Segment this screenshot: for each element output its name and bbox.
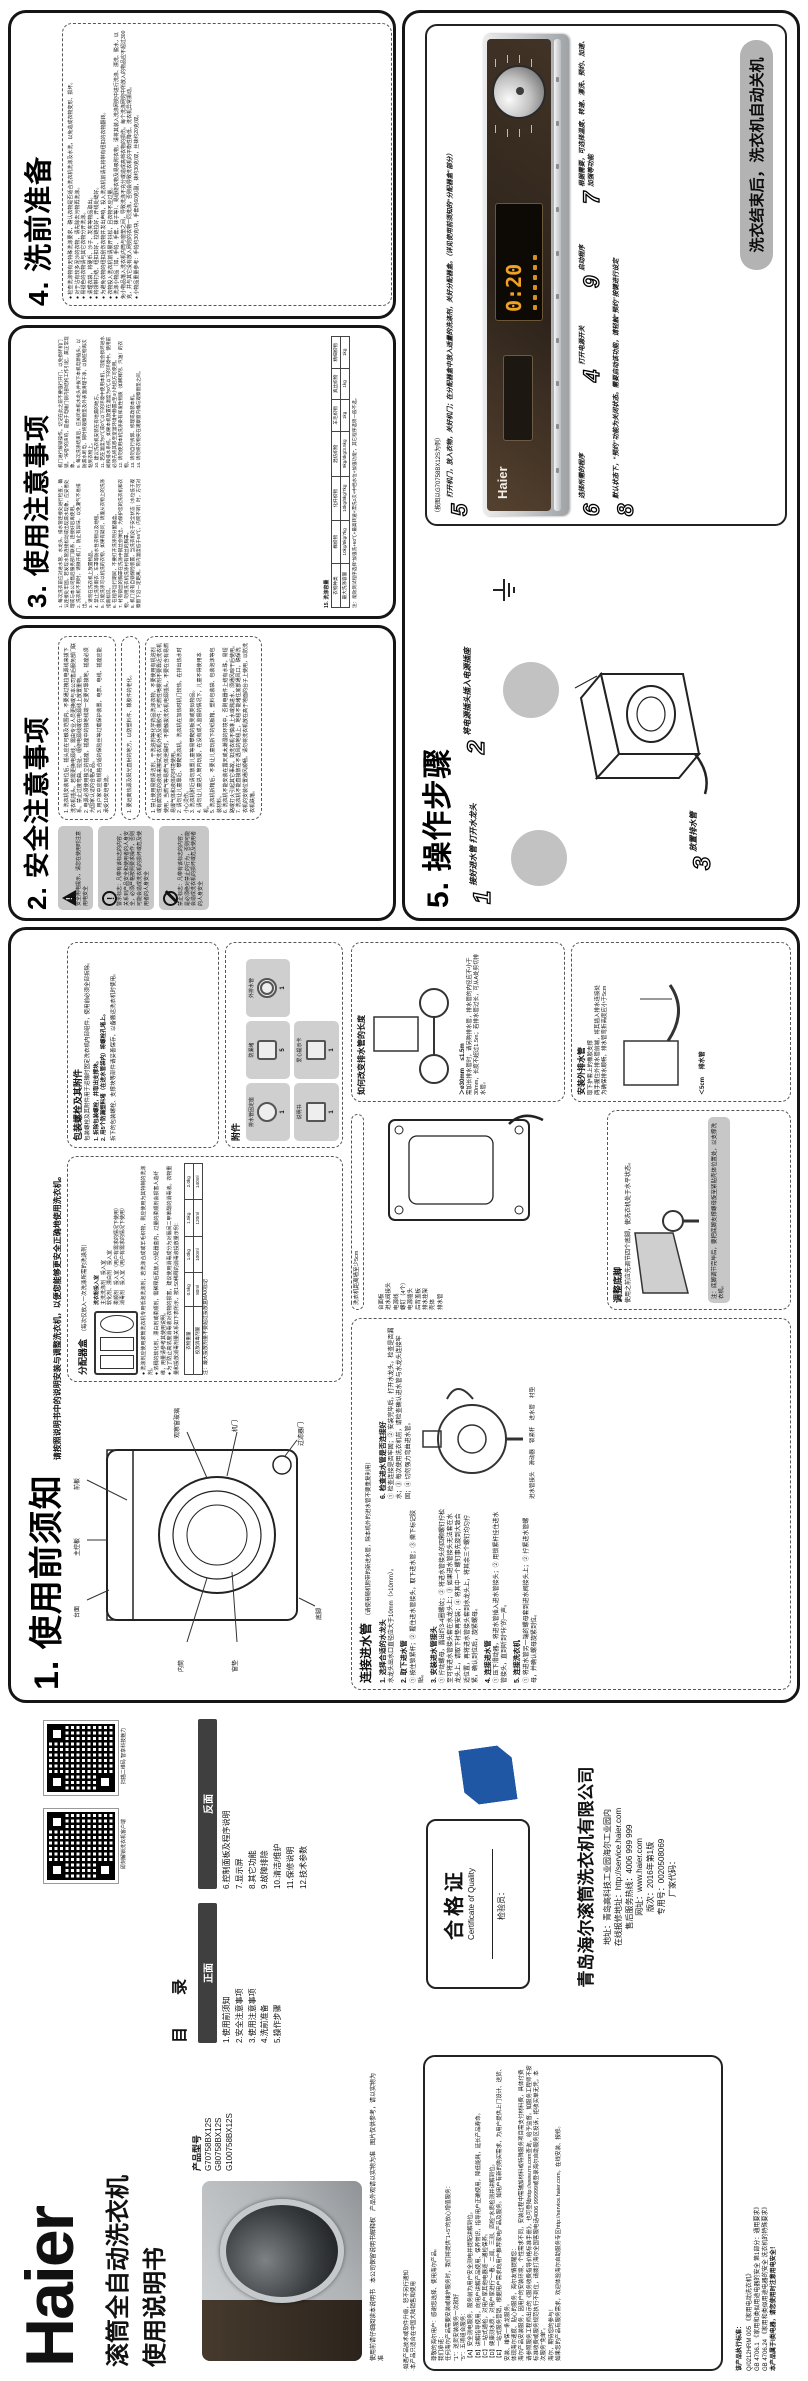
capacity-table-row: 最大洗涤容量10kg/8kg/7kg10kg/8kg/7kg9kg/4kg/3.… — [340, 337, 349, 608]
accessories-title: 附件 — [231, 949, 243, 1141]
step-text: 选择所需的程序 — [579, 453, 605, 499]
adjust-feet-text: 使用之前应先调节四个底脚，使洗衣机处于水平状态。 — [625, 1117, 633, 1303]
drain-maxlen-label: ≤1.5m — [460, 1043, 466, 1060]
control-panel-box: （按图以G70758BX12S为例） 5 打开机门，放入衣物，关好机门；在分配器… — [425, 24, 787, 526]
certificate-box: 合格证 Certificate of Quality 检验员： — [426, 1819, 530, 1989]
toc-item: 1.使用前须知 — [222, 1903, 233, 2043]
section-xiqian-heading: 4. 洗前准备 — [17, 23, 57, 306]
outer-drain-items: 取下护套上的橡胶支撑两手握住外排水管前端，将其插入排水连接处为确保排水顺畅，排水… — [588, 949, 610, 1095]
plug-callout — [503, 662, 559, 718]
accessory-tile: 排水管固定座 1 — [246, 1083, 291, 1141]
connect-part-label: 进水管 — [530, 1404, 536, 1421]
connect-step-title: 2. 取下进水管 — [400, 1509, 409, 1683]
dispenser-title: 分配器盒 — [78, 1339, 88, 1375]
table-cell: 10kg/8kg/7kg — [340, 520, 349, 564]
accessory-tile: 外排水管 1 — [246, 959, 291, 1017]
connect-intro: （请使用随机附带的新进水管，除本机外的进水管不要重复利用） — [366, 1459, 372, 1619]
connect-step-text: ① 压下滑动器，将进水管插入进水管接头；② 用锁紧杆挂住进水管接头，直到听到“咔… — [493, 1509, 509, 1683]
dispenser-compartment: 消毒剂 投入室（用户有需求的情况下使用） — [120, 1205, 127, 1305]
adjust-feet-title: 调整底脚 — [613, 1117, 625, 1303]
step-text: 接好进水管 打开水龙头 — [469, 803, 497, 885]
table-cell: 衣物重量 — [184, 1307, 193, 1375]
service-commitment-line: 任何海尔产品需要安装或维护服务时，我们将提供“1+5”的放心增值服务： — [446, 2065, 453, 2361]
back-part-label: 电源线 — [394, 1234, 401, 1310]
company-info-line: 专用号：0020508069 — [657, 1727, 668, 2027]
ground-symbol — [493, 576, 519, 604]
forbid-item: 1. 禁止使用易燃清洁剂、干洗溶剂等化学药品洗涤衣物，不要使用有机溶剂或有腐蚀性… — [151, 643, 177, 813]
qr-caption-app: 即刻解锁洗衣机客户端 — [121, 1805, 128, 1883]
table-cell: 棉织物 — [331, 520, 340, 564]
step-text: 默认状态下，“预约”功能为关闭状态。需要启动该功能，请轻触“预约”按键进行设定 — [613, 258, 639, 499]
step-number: 1 — [469, 891, 497, 904]
section-xuzhi-panel: 1. 使用前须知 请按照说明书中的说明安装与调整洗衣机，以便您能够更安全正确地使… — [8, 927, 800, 1703]
step-number: 8 — [613, 504, 639, 516]
toc-item: 11.保修说明 — [286, 1719, 297, 1889]
usage-notice-item: 11. 若在温度为0℃或0℃以下的环境中使用本机，可能会损坏进水阀和排水系统。如… — [100, 336, 118, 468]
drain-length-title: 如何改变排水管的长度 — [357, 949, 368, 1095]
toc-item: 7.显示屏 — [235, 1719, 246, 1889]
front-label-filter-door: 过滤器门 — [299, 1392, 306, 1446]
accessory-qty: 5 — [279, 1024, 287, 1076]
company-info-line: 厂家代码： — [668, 1727, 679, 2027]
electric-safety-items: 1. 洗衣机安装到位后，插头应在可触及范围内。不要通过拽拉电源线来拔下洗衣机插头… — [64, 643, 110, 813]
washer-photo — [202, 2181, 362, 2361]
table-cell: 2.0kg — [184, 1164, 193, 1200]
electric-safety-item: 3. 用户家中应有规格合适的保险丝等过载保护装置，电表、电线、插座应能承受10安… — [97, 643, 110, 813]
dispenser-bullet: ● 为了防止高浓度消毒液对衣物的损害，建议使用消毒成分为对氯间二甲苯酚的消毒液。… — [167, 1163, 180, 1375]
table-cell: 最大洗涤容量 — [340, 564, 349, 608]
faucet-callout — [511, 830, 567, 886]
toc-item: 3.使用注意事项 — [248, 1903, 259, 2043]
step-number: 5 — [447, 504, 473, 516]
xiqian-items: ● 检查洗涤物有无特殊洗涤要求，确认衣物是否适合洗衣机洗涤及水洗，以免造成衣物变… — [68, 30, 141, 299]
table-cell: 投放消毒剂量 — [193, 1307, 202, 1375]
usage-notice-item: 12. 请勿使用本机洗涤染有挥发性物质（如稀释剂、汽油）的衣物。 — [118, 336, 130, 468]
toc-item: 9.故障排除 — [260, 1719, 271, 1889]
washer-isometric-drawing — [567, 658, 717, 808]
table-cell: 0.5kg — [184, 1273, 193, 1307]
capacity-table: 衣物种类棉织物化纤织物混纺织物羊毛织物真丝织物精细织物 最大洗涤容量10kg/8… — [331, 336, 350, 608]
connect-step-text: ① 将进水管另一端的螺母套到进水阀接头上；② 拧紧进水管螺母，并确认螺母旋紧到位… — [523, 1509, 539, 1683]
company-info-line: 地址：青岛高科技工业园海尔工业园内 — [603, 1727, 614, 2027]
service-commitment-line: 如果您的产品有服务需求，欢迎体验海尔自助服务专区http://service.h… — [556, 2065, 563, 2361]
service-commitment-line: 【E】一站式服务营销，根据用户需求向用户推荐家电产品及服务。如用户有新的购买需求… — [497, 2065, 512, 2361]
adjust-feet-note: 注：底脚调节完毕后，要把底脚支撑螺母旋至紧贴壳体位置处，以支撑洗衣机。 — [708, 1117, 731, 1303]
company-info-list: 地址：青岛高科技工业园海尔工业园内在线报修地址：http://service.h… — [603, 1727, 679, 2027]
accessory-plug-icon — [257, 1040, 277, 1060]
legend-electric-text: 安全用电提示，请您在使用时注意用电安全 — [76, 830, 89, 906]
display-indicators — [533, 255, 537, 310]
usage-notice-item: 14. 请勿将衣物夹在观察窗内桶与观察窗垫之间。 — [136, 336, 142, 468]
front-label-chuangdian: 窗垫 — [233, 1660, 240, 1672]
dispenser-box: 分配器盒 （每次仅放入一次洗涤所需的洗涤剂） 洗衣粉投入室 主洗洗涤剂 投入室软… — [67, 1156, 343, 1382]
accessory-hose-icon — [257, 978, 277, 998]
connect-step-title: 3. 安装进水管接头 — [430, 1509, 439, 1683]
disinfectant-table-row: 投放消毒剂量80ml100ml120ml140ml — [193, 1164, 202, 1375]
service-commitment-text: 尊敬的海尔用户：感谢您选择、使用海尔产品。我们承诺：任何海尔产品需要安装或维护服… — [432, 2065, 564, 2361]
prep-item: ● 将领带打结、纽扣扣好、拉链拉好，开线处缝好。 — [94, 30, 101, 299]
service-commitment-line: 【B】讲解指导使用，向用户讲解产品使用、保养常识，指导用户正确使用，降低能耗，延… — [476, 2065, 483, 2361]
forbid-item: 2. 请勿让儿童靠近、攀爬洗衣机。洗衣机在加热时机门较热，在排出热水时小心烫伤。 — [177, 643, 190, 813]
washer-back-drawing — [379, 1110, 549, 1230]
back-part-label: 电源插头 — [408, 1234, 415, 1310]
prep-item: ● 检查洗涤物有无特殊洗涤要求，确认衣物是否适合洗衣机洗涤及水洗，以免造成衣物变… — [68, 30, 75, 299]
shiyong-items: 1. 每次洗衣前应对进水管、水龙头、排水管连接处进行检查，确认连接处牢固。若发现… — [58, 336, 324, 608]
adjust-feet-box: 调整底脚 使用之前应先调节四个底脚，使洗衣机处于水平状态。 注：底脚调节完毕后，… — [607, 1110, 791, 1310]
step-text: 打开机门，放入衣物，关好机门；在分配器盒中放入适量的洗涤剂，关好分配器盒。（详见… — [447, 58, 473, 498]
disinfectant-table: 衣物重量0.5kg1.0kg1.5kg2.0kg 投放消毒剂量80ml100ml… — [184, 1163, 203, 1375]
cover-note: 使用前请仔细阅读本说明书 — [371, 2289, 377, 2361]
back-part-label: 进水阀接头 — [386, 1234, 393, 1310]
packing-bolts-box: 包装螺栓及其附件 包装螺栓及其附件用于运输时固定洗衣机内部组件，使用前必须全部拆… — [67, 942, 219, 1148]
table-cell: 羊毛织物 — [331, 400, 340, 432]
drain-length-drawing — [368, 975, 454, 1095]
back-part-label: 后背盖板 — [416, 1234, 423, 1310]
dispenser-note: 注：最大投放剂量不要超过投放盒MAX标记 — [203, 1163, 210, 1375]
prep-item: ● 小物品重量参考：手帕约30克/块，手套约60克/副，袜约30克/双，丝袜约2… — [134, 30, 141, 299]
connect-step-title: 6. 检查进水管是否连接好 — [379, 1325, 388, 1499]
toc-title: 目 录 — [166, 1719, 190, 2043]
table-cell: 80ml — [193, 1273, 202, 1307]
toc-block: 目 录 正面 1.使用前须知2.安全注意事项3.使用注意事项4.洗前准备5.操作… — [166, 1719, 312, 2043]
toc-front-header: 正面 — [198, 1903, 217, 2043]
connect-title: 连接进水管 — [359, 1623, 373, 1683]
haier-logo: Haier — [16, 2065, 84, 2367]
back-part-label: 壳体 — [430, 1234, 437, 1310]
connect-part-label: 衬垫 — [530, 1387, 536, 1398]
back-diagram-labels: 台面板进水阀接头电源线螺钉（4个）电源插头后背盖板排水挂架壳体排水管 — [379, 1234, 445, 1310]
table-cell: 1kg — [340, 400, 349, 432]
wall-distance-note: 洗衣机距离墙至少5cm — [351, 1114, 364, 1310]
usage-notice-item: 9. 每次洗涤结束后，应关闭本机水龙头并拔下本机电源插头，以防漏水断电，同时将观… — [76, 336, 94, 468]
company-name: 青岛海尔滚筒洗衣机有限公司 — [572, 1727, 597, 2027]
table-cell: 1kg — [340, 368, 349, 400]
legend-electric: ! 安全用电提示，请您在使用时注意用电安全 — [58, 826, 93, 910]
table-cell: 化纤织物 — [331, 476, 340, 520]
service-commitment-line: 尊敬的海尔用户：感谢您选择、使用海尔产品。 — [432, 2065, 439, 2361]
display-screen: 0:20 — [495, 203, 543, 321]
cover-title-2: 使用说明书 — [135, 2065, 170, 2367]
front-label-feet: 底脚 — [317, 1608, 324, 1620]
section-shiyong-panel: 3. 使用注意事项 1. 每次洗衣前应对进水管、水龙头、排水管连接处进行检查，确… — [8, 325, 396, 619]
toc-panel: 即刻解锁洗衣机客户端 扫描二维码 智享科技魅力 目 录 正面 1.使用前须知2.… — [16, 1711, 396, 2051]
accessory-name: 爱心提示卡 — [297, 1024, 304, 1076]
connect-part-label: 锁紧杆 — [530, 1426, 536, 1443]
certificate-panel: 合格证 Certificate of Quality 检验员： 青岛海尔滚筒洗衣… — [404, 1711, 796, 2047]
dispenser-compartments: 主洗洗涤剂 投入室软化剂、漂白剂 投入室柔顺剂 投入室（用户有需求的情况下使用）… — [101, 1205, 127, 1305]
connect-step-text: ① 拧动螺母，露出约3-4圈螺纹；② 将进水管接头的四颗螺钉拧松至可将进水管接头… — [439, 1509, 479, 1683]
panel-haier-logo: Haier — [495, 466, 510, 499]
standard-line: GB 4706.24 《家用和类似用途电器的安全 洗衣机的特殊要求》 — [762, 2055, 770, 2371]
table-cell: 10kg/8kg/7kg — [340, 476, 349, 520]
alert-box: 1. 要远离热源及阳光直射的地方，以防塑料件、橡胶件的老化。 — [121, 636, 140, 820]
packing-bolts-title: 包装螺栓及其附件 — [73, 949, 85, 1141]
toc-item: 12.技术参数 — [299, 1719, 310, 1889]
connect-part-labels: 进水管接头滑动器锁紧杆进水管衬垫 — [530, 1325, 537, 1499]
front-label-neitong: 内筒 — [179, 1660, 186, 1672]
electric-safety-item: 1. 洗衣机安装到位后，插头应在可触及范围内。不要通过拽拉电源线来拔下洗衣机插头… — [64, 643, 84, 813]
step-number: 4 — [579, 370, 605, 382]
forbid-box: 1. 禁止使用易燃清洁剂、干洗溶剂等化学药品洗涤衣物，不要使用有机溶剂或有腐蚀性… — [145, 636, 263, 820]
detergent-drawer — [503, 355, 533, 441]
front-label-zhukongban: 主控板 — [75, 1538, 82, 1556]
prep-item: ● 为避免衣物的纽扣刮伤衣物并发出声响，投入洗衣机前请先将带有纽扣的衣物翻转。 — [101, 30, 108, 299]
warning-triangle-icon: ! — [62, 890, 76, 906]
xiqian-box: ● 检查洗涤物有无特殊洗涤要求，确认衣物是否适合洗衣机洗涤及水洗，以免造成衣物变… — [62, 23, 392, 306]
table-cell: 100ml — [193, 1236, 202, 1272]
adjust-feet-drawing — [633, 1193, 703, 1303]
toc-back-list: 6.控制面板及程序说明7.显示屏8.其它功能9.故障排除10.清洁/维护11.保… — [222, 1719, 310, 1889]
prep-item: ● 易褪色的衣物请与其它衣物分开洗涤。 — [81, 30, 88, 299]
table-cell: 真丝织物 — [331, 368, 340, 400]
front-label-qianban: 前板 — [75, 1478, 82, 1490]
toc-back-header: 反面 — [198, 1719, 217, 1889]
certificate-title: 合格证 — [438, 1821, 467, 1987]
table-cell: 1.0kg — [184, 1236, 193, 1272]
section-caozuo-panel: 5. 操作步骤 1 接好进水管 打开水龙头 2 将电源插头插入电源插座 3 放置… — [402, 10, 800, 921]
packing-bolts-intro: 包装螺栓及其附件用于运输时固定洗衣机内部组件，使用前必须全部拆除。 — [85, 949, 92, 1141]
toc-item: 4.洗前准备 — [260, 1903, 271, 2043]
company-info-line: 网址：www.haier.com — [635, 1727, 646, 2027]
front-label-door: 机门 — [233, 1420, 240, 1432]
table-cell: 精细织物 — [331, 337, 340, 369]
panel-caption: （按图以G70758BX12S为例） — [435, 34, 443, 516]
section-xuzhi-heading: 1. 使用前须知 — [19, 1474, 68, 1690]
table-cell: 1.5kg — [184, 1200, 193, 1236]
connect-part-label: 进水管接头 — [530, 1471, 536, 1499]
standards-list: Q/0212HRM 005 《家用电动洗衣机》GB 4706.1 《家用和类似用… — [746, 2055, 770, 2371]
capacity-table-row: 衣物种类棉织物化纤织物混纺织物羊毛织物真丝织物精细织物 — [331, 337, 340, 608]
model-label: 产品型号 — [192, 2065, 204, 2171]
prohibition-icon — [163, 891, 178, 906]
step-text: 根据需要，可选择温度、转速、漂洗、预约、加速、加强等功能 — [579, 34, 605, 187]
connect-step-title: 4. 连接进水管 — [484, 1509, 493, 1683]
accessory-name: 外排水管 — [249, 962, 256, 1014]
front-diagram: 台面 主控板 前板 内筒 窗垫 观察窗玻璃 机门 过滤器门 底脚 — [67, 1390, 343, 1690]
alert-circle-icon: ! — [102, 891, 117, 906]
connect-step-title: 1. 选择合适的水龙头 — [379, 1509, 388, 1683]
legend-forbid: 禁止标志：凡带有该标志的内容，是必须绝对禁止的行为，否则可能会造成洗衣机的损坏或… — [159, 826, 208, 910]
company-block: 青岛海尔滚筒洗衣机有限公司 地址：青岛高科技工业园海尔工业园内在线报修地址：ht… — [572, 1727, 679, 2027]
model-number: G100758BX12S — [225, 2065, 236, 2171]
blue-service-badge — [458, 1744, 517, 1807]
front-label-taimian: 台面 — [75, 1606, 82, 1618]
back-part-label: 排水管 — [438, 1234, 445, 1310]
step-text: 将电源插头插入电源插座 — [463, 648, 491, 736]
qr-code-app — [44, 1809, 118, 1883]
accessory-qty: 1 — [279, 1086, 287, 1138]
drain-length-box: 如何改变排水管的长度 ＞ø30mm ≤1.5m 需加长排水管时，请另购排水管，排… — [351, 942, 565, 1102]
forbid-item: 4. 请勿让儿童进入筒内玩耍，在没有成人监督的情况下，儿童不得使用本机。 — [197, 643, 210, 813]
table-cell: 120ml — [193, 1200, 202, 1236]
electric-safety-box: 1. 洗衣机安装到位后，插头应在可触及范围内。不要通过拽拉电源线来拔下洗衣机插头… — [58, 636, 116, 820]
accessory-drain-seat-icon — [257, 1102, 277, 1122]
cover-note: 产品外观请以实物为准 — [371, 2151, 377, 2211]
standards-note: 本产品属于Ⅰ类电器，请您使用时注意用电安全！ — [770, 2055, 778, 2371]
cover-title-1: 滚筒全自动洗衣机 — [98, 2065, 133, 2367]
auto-off-banner: 洗衣结束后，洗衣机自动关机 — [740, 40, 773, 270]
warranty-top-notes: ·如遇产品技术或软件升级，恕不另行通知·本产品只适合在中国大陆销售和使用 — [404, 2055, 419, 2371]
front-label-glass: 观察窗玻璃 — [175, 1392, 182, 1438]
model-number: G70758BX12S — [204, 2065, 215, 2171]
toc-item: 10.清洁/维护 — [273, 1719, 284, 1889]
certificate-inspector-label: 检验员： — [497, 1821, 508, 1987]
step-number: 3 — [689, 857, 717, 870]
step-number: 9 — [579, 276, 605, 288]
toc-item: 2.安全注意事项 — [235, 1903, 246, 2043]
control-panel-strip: Haier 0:20 — [483, 34, 569, 516]
cover-notes: 使用前请仔细阅读本说明书本公司保留说明书解释权产品外观请以实物为准图片仅供参考，… — [370, 2065, 386, 2361]
forbid-item: 3. 洗衣机附近请勿放置儿童等易攀爬的板凳或类似物品。 — [190, 643, 197, 813]
warranty-panel: ·如遇产品技术或软件升级，恕不另行通知·本产品只适合在中国大陆销售和使用 尊敬的… — [404, 2055, 798, 2371]
connect-step-text: 水龙头出水口直径应大于10mm（>10mm）。 — [388, 1509, 396, 1683]
cover-panel: Haier 滚筒全自动洗衣机 使用说明书 产品型号 G70758BX12SG80… — [16, 2065, 396, 2367]
accessory-tile: 说明书 1 — [294, 1083, 339, 1141]
faucet-drawing — [417, 1349, 527, 1499]
energy-test-note: 注：能效测试程序选择“加强洗+60℃+最高转速+漂洗2次+中档水位+加强功能”，… — [352, 336, 358, 608]
outer-drain-height-label: ＜5cm — [700, 1077, 706, 1095]
outer-drain-step: 取下护套上的橡胶支撑 — [588, 949, 595, 1095]
service-commitment-box: 尊敬的海尔用户：感谢您选择、使用海尔产品。我们承诺：任何海尔产品需要安装或维护服… — [423, 2055, 723, 2371]
connect-part-label: 滑动器 — [530, 1449, 536, 1466]
accessory-qty: 1 — [328, 1086, 336, 1138]
legend-alert: ! 警示标志：凡带有该标志的内容，关系到产品安全和使用者的人身安全，必须严格按照… — [98, 826, 154, 910]
drain-length-text: 需加长排水管时，请另购排水管，排水管的内径应不小于30mm，长度不超过1.5m；… — [467, 949, 489, 1095]
model-number: G80758BX12S — [214, 2065, 225, 2171]
alert-items: 1. 要远离热源及阳光直射的地方，以防塑料件、橡胶件的老化。 — [127, 643, 134, 813]
section-xiqian-panel: 4. 洗前准备 ● 检查洗涤物有无特殊洗涤要求，确认衣物是否适合洗衣机洗涤及水洗… — [8, 10, 396, 319]
remaining-time-display: 0:20 — [502, 264, 526, 312]
company-info-line: 售后服务热线：4006 999 999 — [625, 1727, 636, 2027]
step-number: 6 — [579, 504, 605, 516]
accessory-name: 排水管固定座 — [249, 1086, 256, 1138]
connect-step-text: ① 检查连接是否牢固；② 安装完毕后，打开水龙头，检查是否漏水；③ 每次使用洗衣… — [388, 1325, 412, 1499]
program-dial-labels — [487, 53, 551, 133]
prep-item: ● 洗涤小物品（如，手帕、手套、袜子等）、易缠绕衣物及易吸附衣物，请将其装入洗涤… — [114, 30, 134, 299]
step-text: 放置排水管 — [689, 812, 717, 852]
scanned-manual-page: Haier 滚筒全自动洗衣机 使用说明书 产品型号 G70758BX12SG80… — [0, 0, 808, 2381]
forbid-item: 5. 洗衣机拆箱后，不要让儿童玩拆下的纸板箱、塑料包装袋、包装泡沫等包装材料。 — [210, 643, 223, 813]
section-anquan-heading: 2. 安全注意事项 — [17, 636, 54, 910]
dispenser-bullet: ● 浓稠的软化剂、漂白剂或柔顺剂，需稀释后再放入分配器盒内，过量的柔顺剂会损害人… — [154, 1163, 167, 1375]
section-xuzhi-subtitle: 请按照说明书中的说明安装与调整洗衣机，以便您能够更安全正确地使用洗衣机。 — [53, 1172, 68, 1460]
outer-drain-hose-label: 排水管 — [700, 1051, 706, 1069]
back-diagram: 台面板进水阀接头电源线螺钉（4个）电源插头后背盖板排水挂架壳体排水管 洗衣机距离… — [351, 1110, 601, 1310]
legend-alert-text: 警示标志：凡带有该标志的内容，关系到产品安全和使用者的人身安全，必须严格按照要求… — [117, 830, 150, 906]
powder-slot-label: 洗衣粉投入室 — [94, 1205, 101, 1305]
dispenser-intro: （每次仅放入一次洗涤所需的洗涤剂） — [82, 1241, 88, 1335]
model-block: 产品型号 G70758BX12SG80758BX12SG100758BX12S — [192, 2065, 236, 2171]
accessory-qty: 1 — [328, 1024, 336, 1076]
drain-diameter-label: ＞ø30mm — [460, 1068, 466, 1095]
accessory-qty: 1 — [279, 962, 287, 1014]
table-cell: 1kg — [340, 337, 349, 369]
company-info-line: 版次：2016年第1版 — [646, 1727, 657, 2027]
washer-photo-door — [220, 2199, 344, 2303]
manual-sheet: Haier 滚筒全自动洗衣机 使用说明书 产品型号 G70758BX12SG80… — [0, 0, 808, 2381]
accessory-manual-icon — [306, 1102, 326, 1122]
model-list: G70758BX12SG80758BX12SG100758BX12S — [204, 2065, 236, 2171]
standard-line: GB 4706.1 《家用和类似用途电器的安全 第1部分：通用要求》 — [754, 2055, 762, 2371]
table-cell: 混纺织物 — [331, 431, 340, 476]
usage-notice-item: 5. 只能洗涤可以机洗的衣物，如果有疑问，请遵从衣物上的洗涤指南标识。 — [100, 476, 112, 608]
toc-item: 6.控制面板及程序说明 — [222, 1719, 233, 1889]
outer-drain-box: 安装外排水管 取下护套上的橡胶支撑两手握住外排水管前端，将其插入排水连接处为确保… — [571, 942, 791, 1102]
service-commitment-line: 【A】安全测电服务，服务前为用户安全测电并提配讲解到位。 — [468, 2065, 475, 2361]
service-commitment-line: “1”：送货安装服务一次就好 — [454, 2065, 461, 2361]
usage-notice-item: 2. 洗衣机不用时，请微开机门，防止有异味，以免潮气不易排出。 — [76, 476, 88, 608]
connect-inlet-box: 连接进水管 （请使用随机附带的新进水管，除本机外的进水管不要重复利用） 1. 选… — [351, 1318, 791, 1690]
service-commitment-line: 海尔，期待您的参与！ — [549, 2065, 556, 2361]
alert-item: 1. 要远离热源及阳光直射的地方，以防塑料件、橡胶件的老化。 — [127, 643, 134, 813]
warranty-top-note: ·本产品只适合在中国大陆销售和使用 — [411, 2055, 418, 2371]
usage-notice-item: 1. 每次洗衣前应对进水管、水龙头、排水管连接处进行检查，确认连接处牢固。若发现… — [58, 476, 76, 608]
certificate-subtitle: Certificate of Quality — [467, 1821, 478, 1987]
accessory-card-icon — [306, 1040, 326, 1060]
accessory-name: 说明书 — [297, 1086, 304, 1138]
qr-code-tech — [44, 1721, 118, 1795]
packing-bolt-step: 2. 用5个防漏塑料堵（在进水管袋内）将螺栓孔堵上。 — [101, 949, 108, 1141]
company-info-line: 在线报修地址：http://service.haier.com — [614, 1727, 625, 2027]
setup-illustration: 1 接好进水管 打开水龙头 2 将电源插头插入电源插座 3 放置排水管 — [463, 534, 789, 904]
capacity-label: 15. 洗涤容量 — [324, 336, 331, 608]
toc-item: 5.操作步骤 — [273, 1903, 284, 2043]
accessory-tile: 防漏堵 5 — [246, 1021, 291, 1079]
dispenser-drawing — [94, 1311, 138, 1375]
step-number: 2 — [463, 741, 491, 754]
connect-step-text: ① 按住锁紧杆；② 握住进水管接头，取下进水管；③ 撕下标记胶贴。 — [410, 1509, 426, 1683]
cover-note: 本公司保留说明书解释权 — [371, 2217, 377, 2283]
table-cell: 衣物种类 — [331, 564, 340, 608]
dispenser-bullets: ● 洗涤剂应使用滚筒洗衣机专用低泡洗涤剂；若洗涤合成或羊毛织物，则应使用为其特制… — [141, 1163, 181, 1375]
packing-bolts-note: 拆下的包装螺栓、支撑块等部件请妥善保存，以备搬运洗衣机时使用。 — [111, 949, 118, 1141]
touch-button-bar — [554, 39, 561, 511]
section-shiyong-heading: 3. 使用注意事项 — [17, 336, 54, 608]
section-anquan-panel: 2. 安全注意事项 ! 安全用电提示，请您在使用时注意用电安全 ! 警示标志：凡… — [8, 625, 396, 921]
service-commitment-line: 海尔产品安装服务，因用户的安装环境、个性需求不同，安装过程中需辅加材料或特殊服务… — [519, 2065, 548, 2361]
standards-title: 该产品执行标准： — [737, 2323, 743, 2371]
forbid-item: 6. 洗衣机不能安装在露天或太潮湿的环境中，否则电器件上结有水珠，易短路或打火引… — [223, 643, 236, 813]
table-cell: 140ml — [193, 1164, 202, 1200]
step-text: 打开电源开关 — [579, 326, 605, 365]
connect-step-title: 5. 连接洗衣机 — [513, 1509, 522, 1683]
step-text: 启动程序 — [579, 245, 605, 271]
forbid-item: 7. 洗衣机不能直接放在不透风的地毯上，地毯不能堵住底部通风口，确保洗衣机的安装… — [236, 643, 256, 813]
accessory-name: 防漏堵 — [249, 1024, 256, 1076]
washer-photo-control-band — [202, 2300, 362, 2361]
dispenser-bullet: ● 洗涤剂应使用滚筒洗衣机专用低泡洗涤剂；若洗涤合成或羊毛织物，则应使用为其特制… — [141, 1163, 154, 1375]
electric-safety-item: 2. 电源必须使用独立的插座，插座中的接地线端一定要可靠接地，插座必须为国家认证… — [84, 643, 97, 813]
dispenser-compartment: 软化剂、漂白剂 投入室 — [107, 1205, 114, 1305]
usage-notice-item: 7. 衬有钢丝的胸罩在洗涤中钢丝会弹出，为保护您的洗衣机和衣物，勿用洗衣机洗涤衬… — [118, 476, 130, 608]
packing-bolts-steps: 1. 拆除包装螺栓，并取出支撑块。2. 用5个防漏塑料堵（在进水管袋内）将螺栓孔… — [94, 949, 109, 1141]
accessory-tile: 爱心提示卡 1 — [294, 1021, 339, 1079]
legend-forbid-text: 禁止标志：凡带有该标志的内容，是必须绝对禁止的行为，否则可能会造成洗衣机的损坏或… — [178, 830, 204, 906]
toc-front-list: 1.使用前须知2.安全注意事项3.使用注意事项4.洗前准备5.操作步骤 — [222, 1903, 284, 2043]
outer-drain-title: 安装外排水管 — [577, 949, 588, 1095]
forbid-items: 1. 禁止使用易燃清洁剂、干洗溶剂等化学药品洗涤衣物，不要使用有机溶剂或有腐蚀性… — [151, 643, 257, 813]
table-cell: 9kg/4kg/3.5kg — [340, 431, 349, 476]
qr-caption-tech: 扫描二维码 智享科技魅力 — [121, 1717, 128, 1795]
outer-drain-drawing — [610, 965, 694, 1095]
disinfectant-table-row: 衣物重量0.5kg1.0kg1.5kg2.0kg — [184, 1164, 193, 1375]
standard-line: Q/0212HRM 005 《家用电动洗衣机》 — [746, 2055, 754, 2371]
accessories-box: 附件 排水管固定座 1 防漏堵 5 外排水管 1 说明 — [225, 942, 343, 1148]
outer-drain-step: 为确保排水顺畅，排水管弯折高度应小于5cm — [602, 949, 609, 1095]
toc-item: 8.其它功能 — [248, 1719, 259, 1889]
step-number: 7 — [579, 192, 605, 204]
